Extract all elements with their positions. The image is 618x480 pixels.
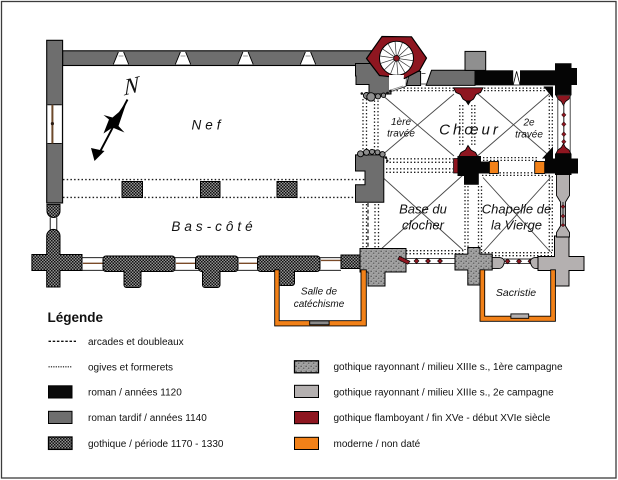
svg-text:Salle de: Salle de xyxy=(301,287,338,298)
svg-text:N: N xyxy=(123,71,140,102)
svg-text:Nef: Nef xyxy=(191,117,224,132)
svg-text:gothique rayonnant / milieu XI: gothique rayonnant / milieu XIIIe s., 2e… xyxy=(334,387,555,398)
svg-text:Base du: Base du xyxy=(399,202,447,217)
svg-text:gothique flamboyant / fin XVe: gothique flamboyant / fin XVe - début XV… xyxy=(334,413,551,424)
svg-text:2e: 2e xyxy=(522,118,535,129)
svg-text:gothique rayonnant / milieu XI: gothique rayonnant / milieu XIIIe s., 1è… xyxy=(334,362,563,373)
svg-text:roman tardif / années 1140: roman tardif / années 1140 xyxy=(88,413,207,424)
svg-text:moderne / non daté: moderne / non daté xyxy=(334,439,421,450)
svg-text:ogives et formerets: ogives et formerets xyxy=(88,362,173,373)
svg-text:clocher: clocher xyxy=(402,218,445,233)
svg-text:Sacristie: Sacristie xyxy=(496,287,536,299)
svg-text:travée: travée xyxy=(387,129,415,140)
svg-text:arcades et doubleaux: arcades et doubleaux xyxy=(88,337,184,348)
svg-text:Chœur: Chœur xyxy=(439,122,501,139)
svg-text:1ère: 1ère xyxy=(391,117,411,128)
svg-text:roman / années 1120: roman / années 1120 xyxy=(88,388,182,399)
svg-text:Légende: Légende xyxy=(48,310,104,325)
svg-text:catéchisme: catéchisme xyxy=(294,299,345,310)
svg-text:gothique / période 1170 - 1330: gothique / période 1170 - 1330 xyxy=(88,439,224,450)
svg-text:travée: travée xyxy=(515,130,543,141)
svg-text:la Vierge: la Vierge xyxy=(491,218,542,233)
svg-text:Chapelle de: Chapelle de xyxy=(482,202,551,217)
svg-text:Bas-côté: Bas-côté xyxy=(171,219,256,234)
